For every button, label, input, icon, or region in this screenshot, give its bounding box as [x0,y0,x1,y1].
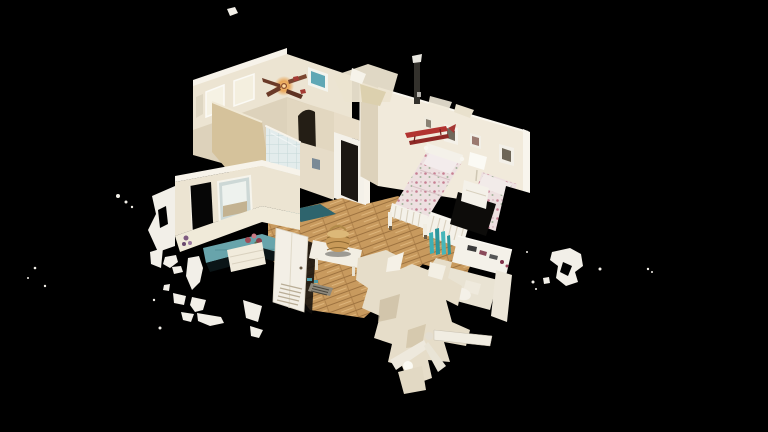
dollhouse-viewport[interactable] [0,0,768,432]
scan-fragment [532,281,535,284]
fan-light [282,84,286,88]
scan-fragment [27,277,29,279]
small-art [312,158,320,170]
scan-fragment [647,268,649,270]
scan-fragment [526,251,528,253]
fan-hub [425,332,433,340]
window-small [196,94,203,118]
blue-item [314,280,318,283]
scan-fragment [34,267,37,270]
scan-fragment [153,299,155,301]
scan-fragment [535,288,537,290]
door-knob [300,267,303,270]
scan-fragment [159,327,162,330]
scan-fragment [131,206,133,208]
scan-fragment [543,277,550,284]
scan-fragment [44,285,46,287]
scan-fragment [163,284,170,291]
door-opening [341,140,358,202]
scan-fragment [651,271,653,273]
mirror-pole [414,58,420,104]
scan-fragment [599,268,602,271]
dollhouse-canvas [0,0,768,432]
scan-fragment [116,194,120,198]
blue-item [307,278,312,281]
scan-fragment [125,201,128,204]
